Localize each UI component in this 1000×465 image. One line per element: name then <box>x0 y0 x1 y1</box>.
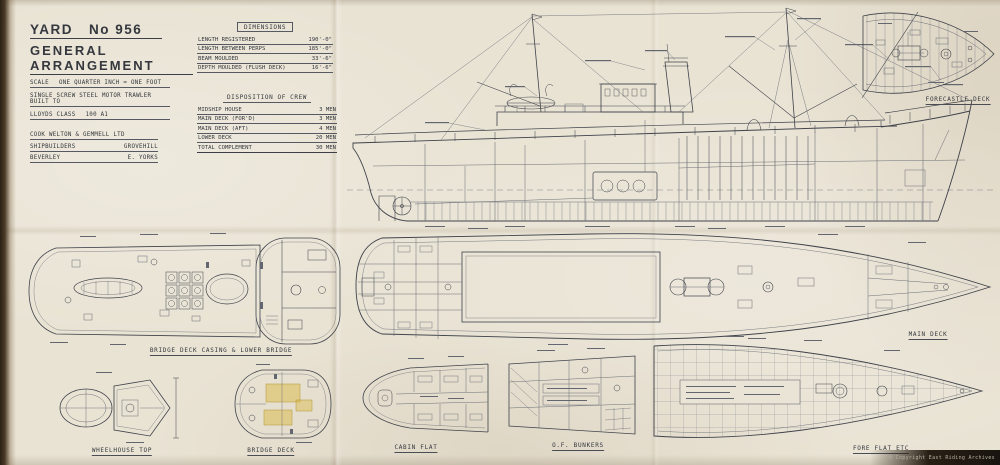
caption-cabin-flat: CABIN FLAT <box>394 444 437 453</box>
scale-value: ONE QUARTER INCH = ONE FOOT <box>59 80 161 86</box>
builder-place: GROVEHILL <box>124 144 158 150</box>
caption-main-deck: MAIN DECK <box>909 331 948 340</box>
builder-name-line: COOK WELTON & GEMMELL LTD <box>30 132 158 140</box>
table-row: MIDSHIP HOUSE3 MEN <box>197 105 337 115</box>
class-line: LLOYDS CLASS 100 A1 <box>30 112 170 120</box>
hull-internals <box>373 120 965 221</box>
highlighted-areas <box>264 384 312 425</box>
main-deck-plan <box>348 226 998 350</box>
title-block: YARD No 956 GENERAL ARRANGEMENT SCALE ON… <box>30 22 200 163</box>
table-row-total: TOTAL COMPLEMENT30 MEN <box>197 143 337 153</box>
bridge-casing-lower-bridge-plan <box>20 232 348 350</box>
table-row: BEAM MOULDED33'-6" <box>197 54 333 64</box>
table-row: MAIN DECK (FOR'D)3 MEN <box>197 115 337 125</box>
dimensions-table: DIMENSIONS LENGTH REGISTERED190'-0" LENG… <box>197 22 333 73</box>
drawing-title: GENERAL ARRANGEMENT <box>30 43 193 75</box>
caption-bridge-casing: BRIDGE DECK CASING & LOWER BRIDGE <box>150 347 292 356</box>
oil-fuel-bunkers-plan <box>497 348 644 442</box>
drawing-title-text: GENERAL ARRANGEMENT <box>30 43 193 73</box>
aft-cabins <box>358 236 462 339</box>
yard-label: YARD <box>30 22 73 37</box>
scale-label: SCALE <box>30 80 49 86</box>
caption-bridge-deck: BRIDGE DECK <box>247 447 294 456</box>
builder-town-line: BEVERLEY E. YORKS <box>30 155 158 163</box>
skylight-grid <box>166 272 203 309</box>
forecastle-deck-plan <box>848 2 998 97</box>
bridge-deck-plan <box>226 362 340 446</box>
general-arrangement-sheet: YARD No 956 GENERAL ARRANGEMENT SCALE ON… <box>0 0 1000 465</box>
table-row: DEPTH MOULDED (FLUSH DECK)16'-6" <box>197 64 333 74</box>
yard-number-line: YARD No 956 <box>30 22 162 39</box>
bow-compartments <box>868 254 949 320</box>
table-row: LOWER DECK20 MEN <box>197 134 337 144</box>
builder-county: E. YORKS <box>128 155 158 161</box>
builder-town: BEVERLEY <box>30 155 60 161</box>
vessel-type-line: SINGLE SCREW STEEL MOTOR TRAWLER BUILT T… <box>30 93 170 107</box>
fore-flat-plan <box>644 336 996 446</box>
builder-role: SHIPBUILDERS <box>30 144 75 150</box>
caption-of-bunkers: O.F. BUNKERS <box>552 442 604 451</box>
superstructure <box>495 44 693 126</box>
trawl-winch <box>670 278 724 296</box>
table-row: LENGTH REGISTERED190'-0" <box>197 35 333 45</box>
copyright-text: © Copyright East Riding Archives <box>889 455 995 461</box>
yard-number: No 956 <box>89 22 142 37</box>
wheelhouse-top-plan <box>56 366 181 446</box>
table-row: MAIN DECK (AFT)4 MEN <box>197 124 337 134</box>
scale-line: SCALE ONE QUARTER INCH = ONE FOOT <box>30 80 170 88</box>
scan-edge-left <box>0 0 16 465</box>
caption-wheelhouse-top: WHEELHOUSE TOP <box>92 447 152 456</box>
class-label: LLOYDS CLASS <box>30 112 75 118</box>
builder-name: COOK WELTON & GEMMELL LTD <box>30 132 125 138</box>
table-row: LENGTH BETWEEN PERPS185'-0" <box>197 45 333 55</box>
cabin-flat-plan <box>348 352 494 444</box>
caption-forecastle-deck: FORECASTLE DECK <box>926 96 991 105</box>
class-value: 100 A1 <box>85 112 108 118</box>
builder-block: COOK WELTON & GEMMELL LTD SHIPBUILDERS G… <box>30 132 158 163</box>
crew-table: DISPOSITION OF CREW MIDSHIP HOUSE3 MEN M… <box>197 94 337 153</box>
dimensions-title: DIMENSIONS <box>237 22 293 32</box>
crew-title: DISPOSITION OF CREW <box>223 94 311 103</box>
copyright-strip: © Copyright East Riding Archives <box>870 450 1000 465</box>
builder-role-line: SHIPBUILDERS GROVEHILL <box>30 144 158 152</box>
vessel-type-text: SINGLE SCREW STEEL MOTOR TRAWLER BUILT T… <box>30 93 170 105</box>
